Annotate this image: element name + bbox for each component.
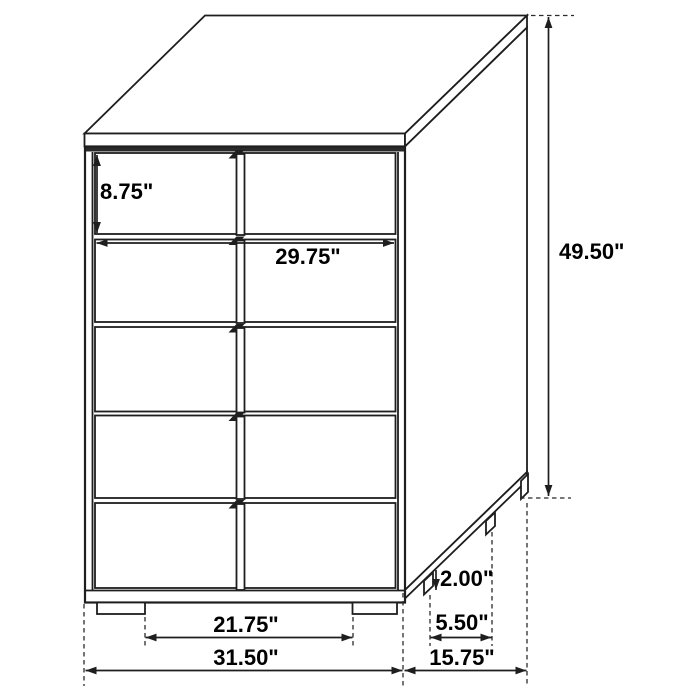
label-drawer-height: 8.75" — [100, 179, 153, 204]
diagram-canvas: 8.75" 29.75" 49.50" 2.00" 5.50" 21.75" 3… — [0, 0, 700, 700]
label-overall-depth: 15.75" — [429, 645, 494, 670]
top-slab-front-edge — [85, 134, 406, 147]
front-top-rail — [86, 148, 404, 152]
drawer-fronts — [95, 150, 396, 590]
label-overall-height: 49.50" — [559, 239, 624, 264]
drawer-2-handle — [237, 241, 245, 324]
label-foot-height: 2.00" — [440, 566, 493, 591]
drawer-3-handle — [237, 328, 245, 413]
front-left-foot — [97, 603, 145, 615]
drawer-1-handle — [237, 154, 245, 235]
label-overall-width: 31.50" — [213, 645, 278, 670]
drawer-5-handle — [237, 504, 245, 590]
chest-dimension-diagram: 8.75" 29.75" 49.50" 2.00" 5.50" 21.75" 3… — [0, 0, 700, 700]
label-drawer-width: 29.75" — [275, 244, 340, 269]
label-side-foot-spacing: 5.50" — [435, 610, 488, 635]
drawer-4-handle — [237, 417, 245, 500]
front-right-foot — [353, 603, 398, 615]
label-front-foot-spacing: 21.75" — [213, 612, 278, 637]
